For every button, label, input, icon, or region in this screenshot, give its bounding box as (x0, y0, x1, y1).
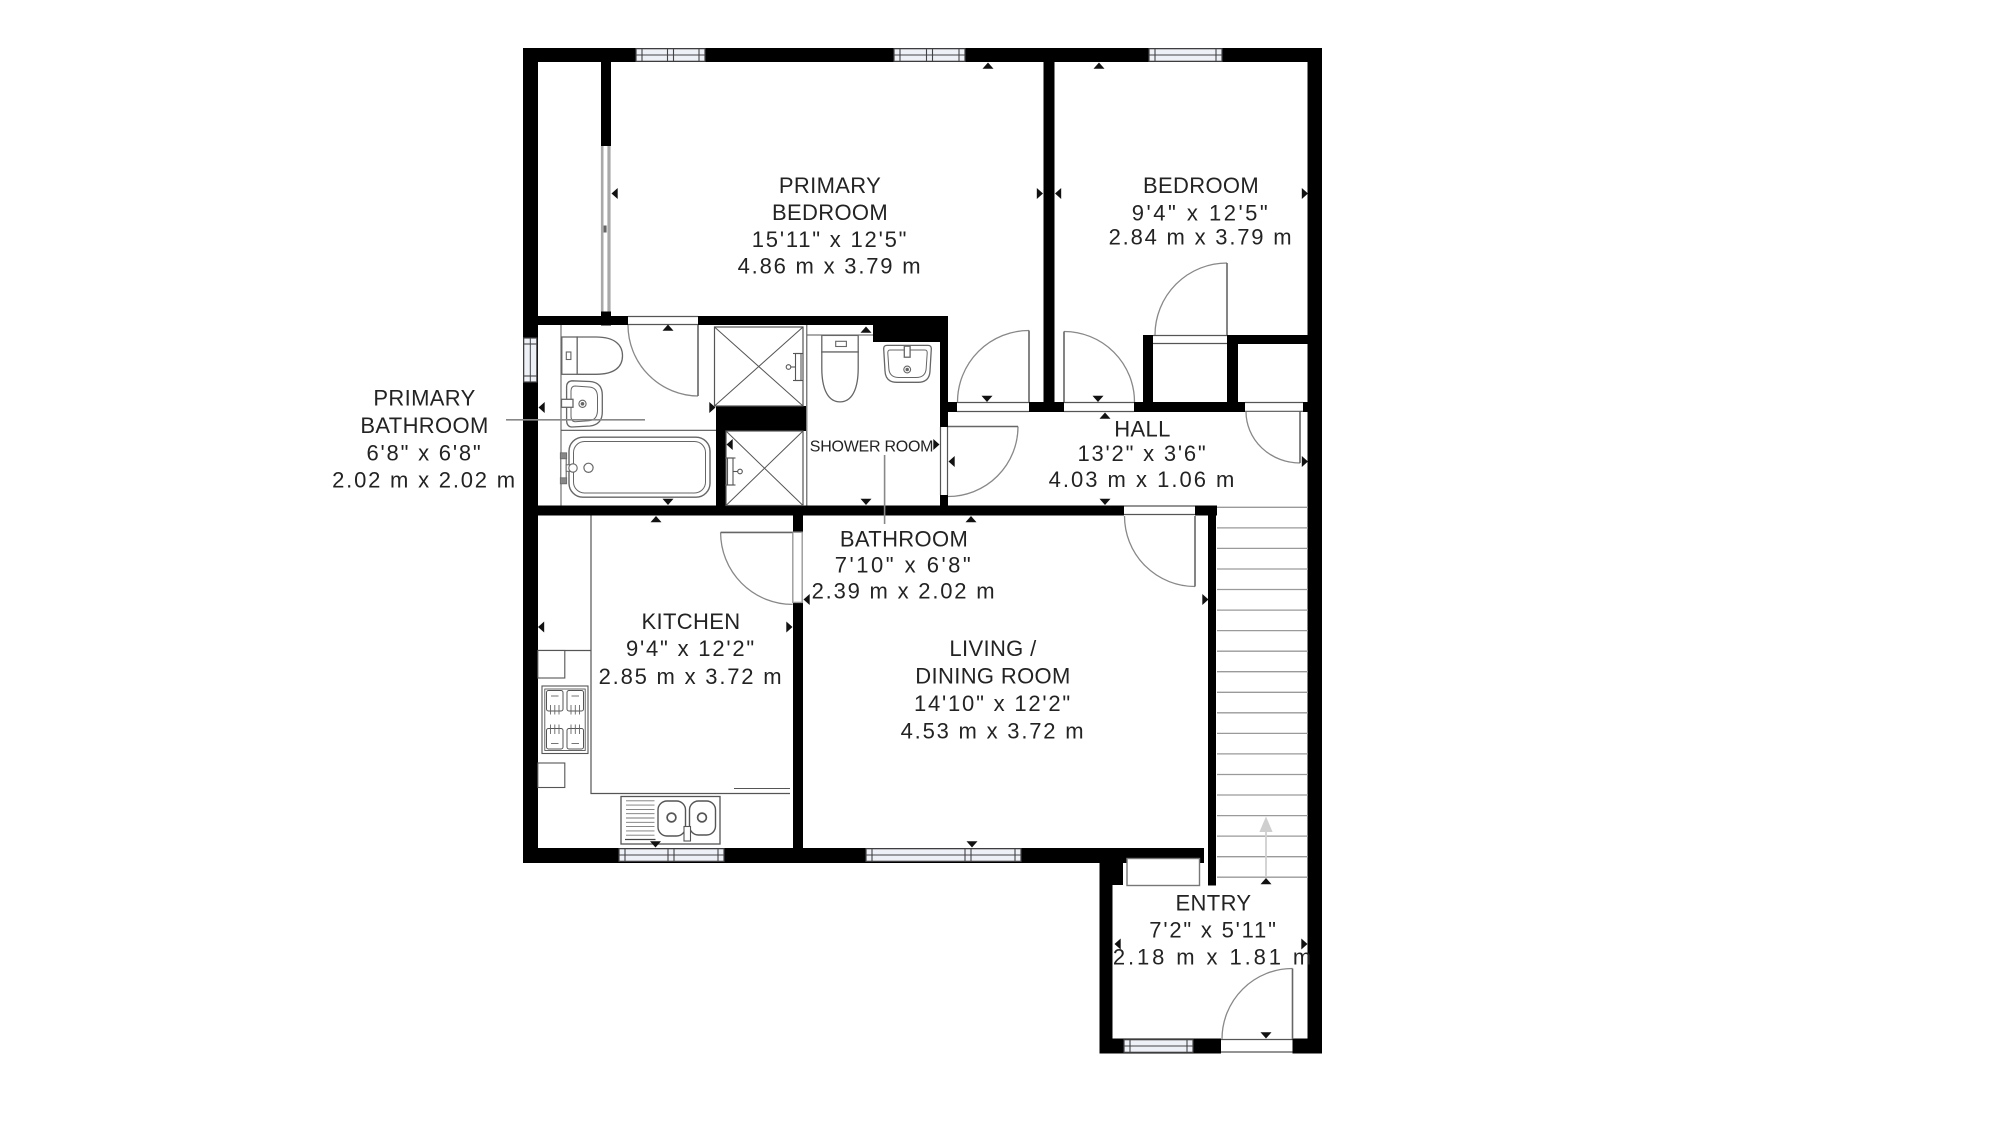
svg-text:13'2" x 3'6": 13'2" x 3'6" (1077, 441, 1207, 466)
svg-text:7'10" x 6'8": 7'10" x 6'8" (835, 553, 973, 578)
svg-text:BEDROOM: BEDROOM (1143, 173, 1259, 198)
svg-text:4.03 m x 1.06 m: 4.03 m x 1.06 m (1049, 467, 1237, 492)
svg-text:KITCHEN: KITCHEN (641, 609, 740, 634)
svg-text:2.84 m x 3.79 m: 2.84 m x 3.79 m (1109, 225, 1294, 250)
svg-text:9'4" x 12'2": 9'4" x 12'2" (626, 636, 756, 661)
svg-text:LIVING /: LIVING / (949, 636, 1037, 661)
svg-text:BATHROOM: BATHROOM (840, 527, 968, 552)
svg-text:ENTRY: ENTRY (1176, 891, 1252, 916)
svg-text:PRIMARY: PRIMARY (373, 386, 475, 411)
svg-text:6'8" x 6'8": 6'8" x 6'8" (367, 441, 483, 466)
svg-text:SHOWER ROOM: SHOWER ROOM (810, 439, 933, 456)
svg-text:DINING ROOM: DINING ROOM (915, 664, 1070, 689)
svg-text:9'4" x 12'5": 9'4" x 12'5" (1132, 201, 1270, 226)
svg-text:15'11" x 12'5": 15'11" x 12'5" (752, 227, 908, 252)
svg-text:2.85 m x 3.72 m: 2.85 m x 3.72 m (599, 664, 784, 689)
svg-text:BATHROOM: BATHROOM (360, 413, 488, 438)
svg-text:2.39 m x 2.02 m: 2.39 m x 2.02 m (812, 579, 997, 604)
svg-text:HALL: HALL (1114, 417, 1170, 442)
svg-text:2.18 m x 1.81 m: 2.18 m x 1.81 m (1113, 945, 1314, 970)
svg-text:7'2" x 5'11": 7'2" x 5'11" (1149, 918, 1277, 943)
svg-text:BEDROOM: BEDROOM (772, 200, 888, 225)
svg-text:PRIMARY: PRIMARY (779, 173, 881, 198)
svg-text:4.86 m x 3.79 m: 4.86 m x 3.79 m (738, 254, 923, 279)
svg-text:14'10" x 12'2": 14'10" x 12'2" (914, 691, 1072, 716)
svg-text:4.53 m x 3.72 m: 4.53 m x 3.72 m (901, 719, 1086, 744)
svg-text:2.02 m x 2.02 m: 2.02 m x 2.02 m (332, 468, 517, 493)
